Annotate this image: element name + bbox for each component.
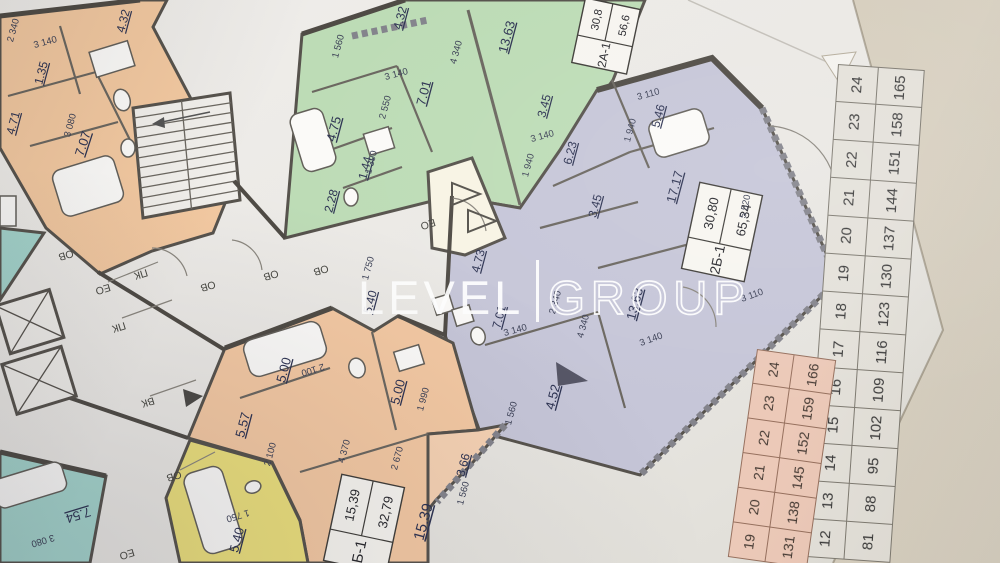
table-row: 21144: [827, 178, 916, 222]
cell-value: 88: [862, 495, 880, 513]
table-row: 18123: [819, 291, 908, 335]
floor-cell: 22: [830, 140, 874, 181]
apartment-number-cell: 145: [775, 458, 821, 499]
apartment-number-cell: 166: [790, 354, 836, 395]
cut-label-box: [0, 196, 16, 226]
cell-value: 12: [816, 530, 834, 548]
cell-value: 102: [867, 415, 886, 441]
apartment-number-cell: 102: [852, 408, 901, 449]
cell-value: 123: [875, 301, 894, 327]
floor-cell: 23: [833, 102, 877, 143]
apartment-number-cell: 144: [868, 181, 917, 222]
apartment-number-cell: 151: [871, 143, 920, 184]
cell-value: 24: [848, 75, 866, 93]
cell-value: 20: [745, 498, 763, 516]
floor-cell: 21: [738, 453, 781, 493]
apartment-number-cell: 109: [855, 370, 904, 411]
cell-value: 152: [793, 431, 812, 456]
cell-value: 18: [832, 302, 850, 320]
toilet-icon: [121, 139, 135, 157]
cell-value: 130: [877, 263, 896, 289]
cell-value: 13: [819, 492, 837, 510]
table-row: 1281: [804, 519, 893, 563]
cell-value: 95: [864, 457, 882, 475]
cell-value: 21: [840, 189, 858, 207]
floor-cell: 19: [822, 254, 866, 295]
cell-value: 21: [750, 464, 768, 482]
cell-value: 17: [830, 340, 848, 358]
cell-value: 145: [788, 465, 807, 490]
table-row: 19130: [822, 254, 911, 298]
cell-value: 159: [798, 396, 817, 421]
floor-cell: 24: [835, 64, 879, 105]
floor-cell: 19: [728, 522, 771, 562]
cell-value: 116: [872, 340, 891, 365]
apartment-number-cell: 88: [847, 484, 896, 525]
floor-cell: 20: [733, 488, 776, 528]
apartment-number-cell: 152: [780, 424, 826, 465]
cell-value: 23: [845, 113, 863, 131]
cell-value: 14: [822, 454, 840, 472]
table-row: 23158: [833, 102, 922, 146]
floor-cell: 23: [747, 384, 790, 424]
cell-value: 19: [740, 533, 758, 551]
floor-cell: 22: [742, 418, 785, 458]
floor-cell: 20: [825, 216, 869, 257]
cell-value: 24: [764, 360, 782, 378]
table-row: 24165: [835, 64, 924, 108]
table-row: 22151: [830, 140, 919, 184]
floor-cell: 18: [819, 291, 863, 332]
cell-value: 144: [883, 188, 902, 214]
cell-value: 158: [888, 112, 907, 138]
cell-value: 19: [835, 265, 853, 283]
cell-value: 22: [755, 429, 773, 447]
apartment-number-cell: 159: [785, 389, 831, 430]
apartment-number-cell: 130: [863, 256, 912, 297]
apartment-number-cell: 95: [850, 446, 899, 487]
apartment-number-cell: 116: [858, 332, 907, 373]
floor-cell: 21: [827, 178, 871, 219]
apartment-number-cell: 165: [876, 67, 925, 108]
cell-value: 151: [885, 150, 904, 176]
toilet-icon: [344, 188, 358, 206]
cell-value: 131: [779, 535, 798, 560]
cell-value: 165: [891, 74, 910, 100]
cell-value: 23: [760, 394, 778, 412]
table-row: 1388: [806, 481, 895, 525]
apartment-number-cell: 158: [874, 105, 923, 146]
cell-value: 138: [784, 500, 803, 525]
table-row: 20137: [825, 216, 914, 260]
floor-cell: 24: [752, 349, 795, 389]
apartment-number-cell: 137: [866, 218, 915, 259]
apartment-number-cell: 131: [765, 528, 811, 563]
cell-value: 81: [859, 533, 877, 551]
cell-value: 137: [880, 225, 899, 251]
floorplan-photo: 2А-1 30,8 56,6 2Б-1 30,80 65,34 Б-1 15,3…: [0, 0, 1000, 563]
apartment-number-cell: 138: [770, 493, 816, 534]
cell-value: 166: [803, 362, 822, 387]
cell-value: 20: [837, 227, 855, 245]
apartment-number-cell: 123: [860, 294, 909, 335]
apartment-number-cell: 81: [844, 522, 893, 563]
cell-value: 22: [843, 151, 861, 169]
cell-value: 109: [869, 377, 888, 403]
